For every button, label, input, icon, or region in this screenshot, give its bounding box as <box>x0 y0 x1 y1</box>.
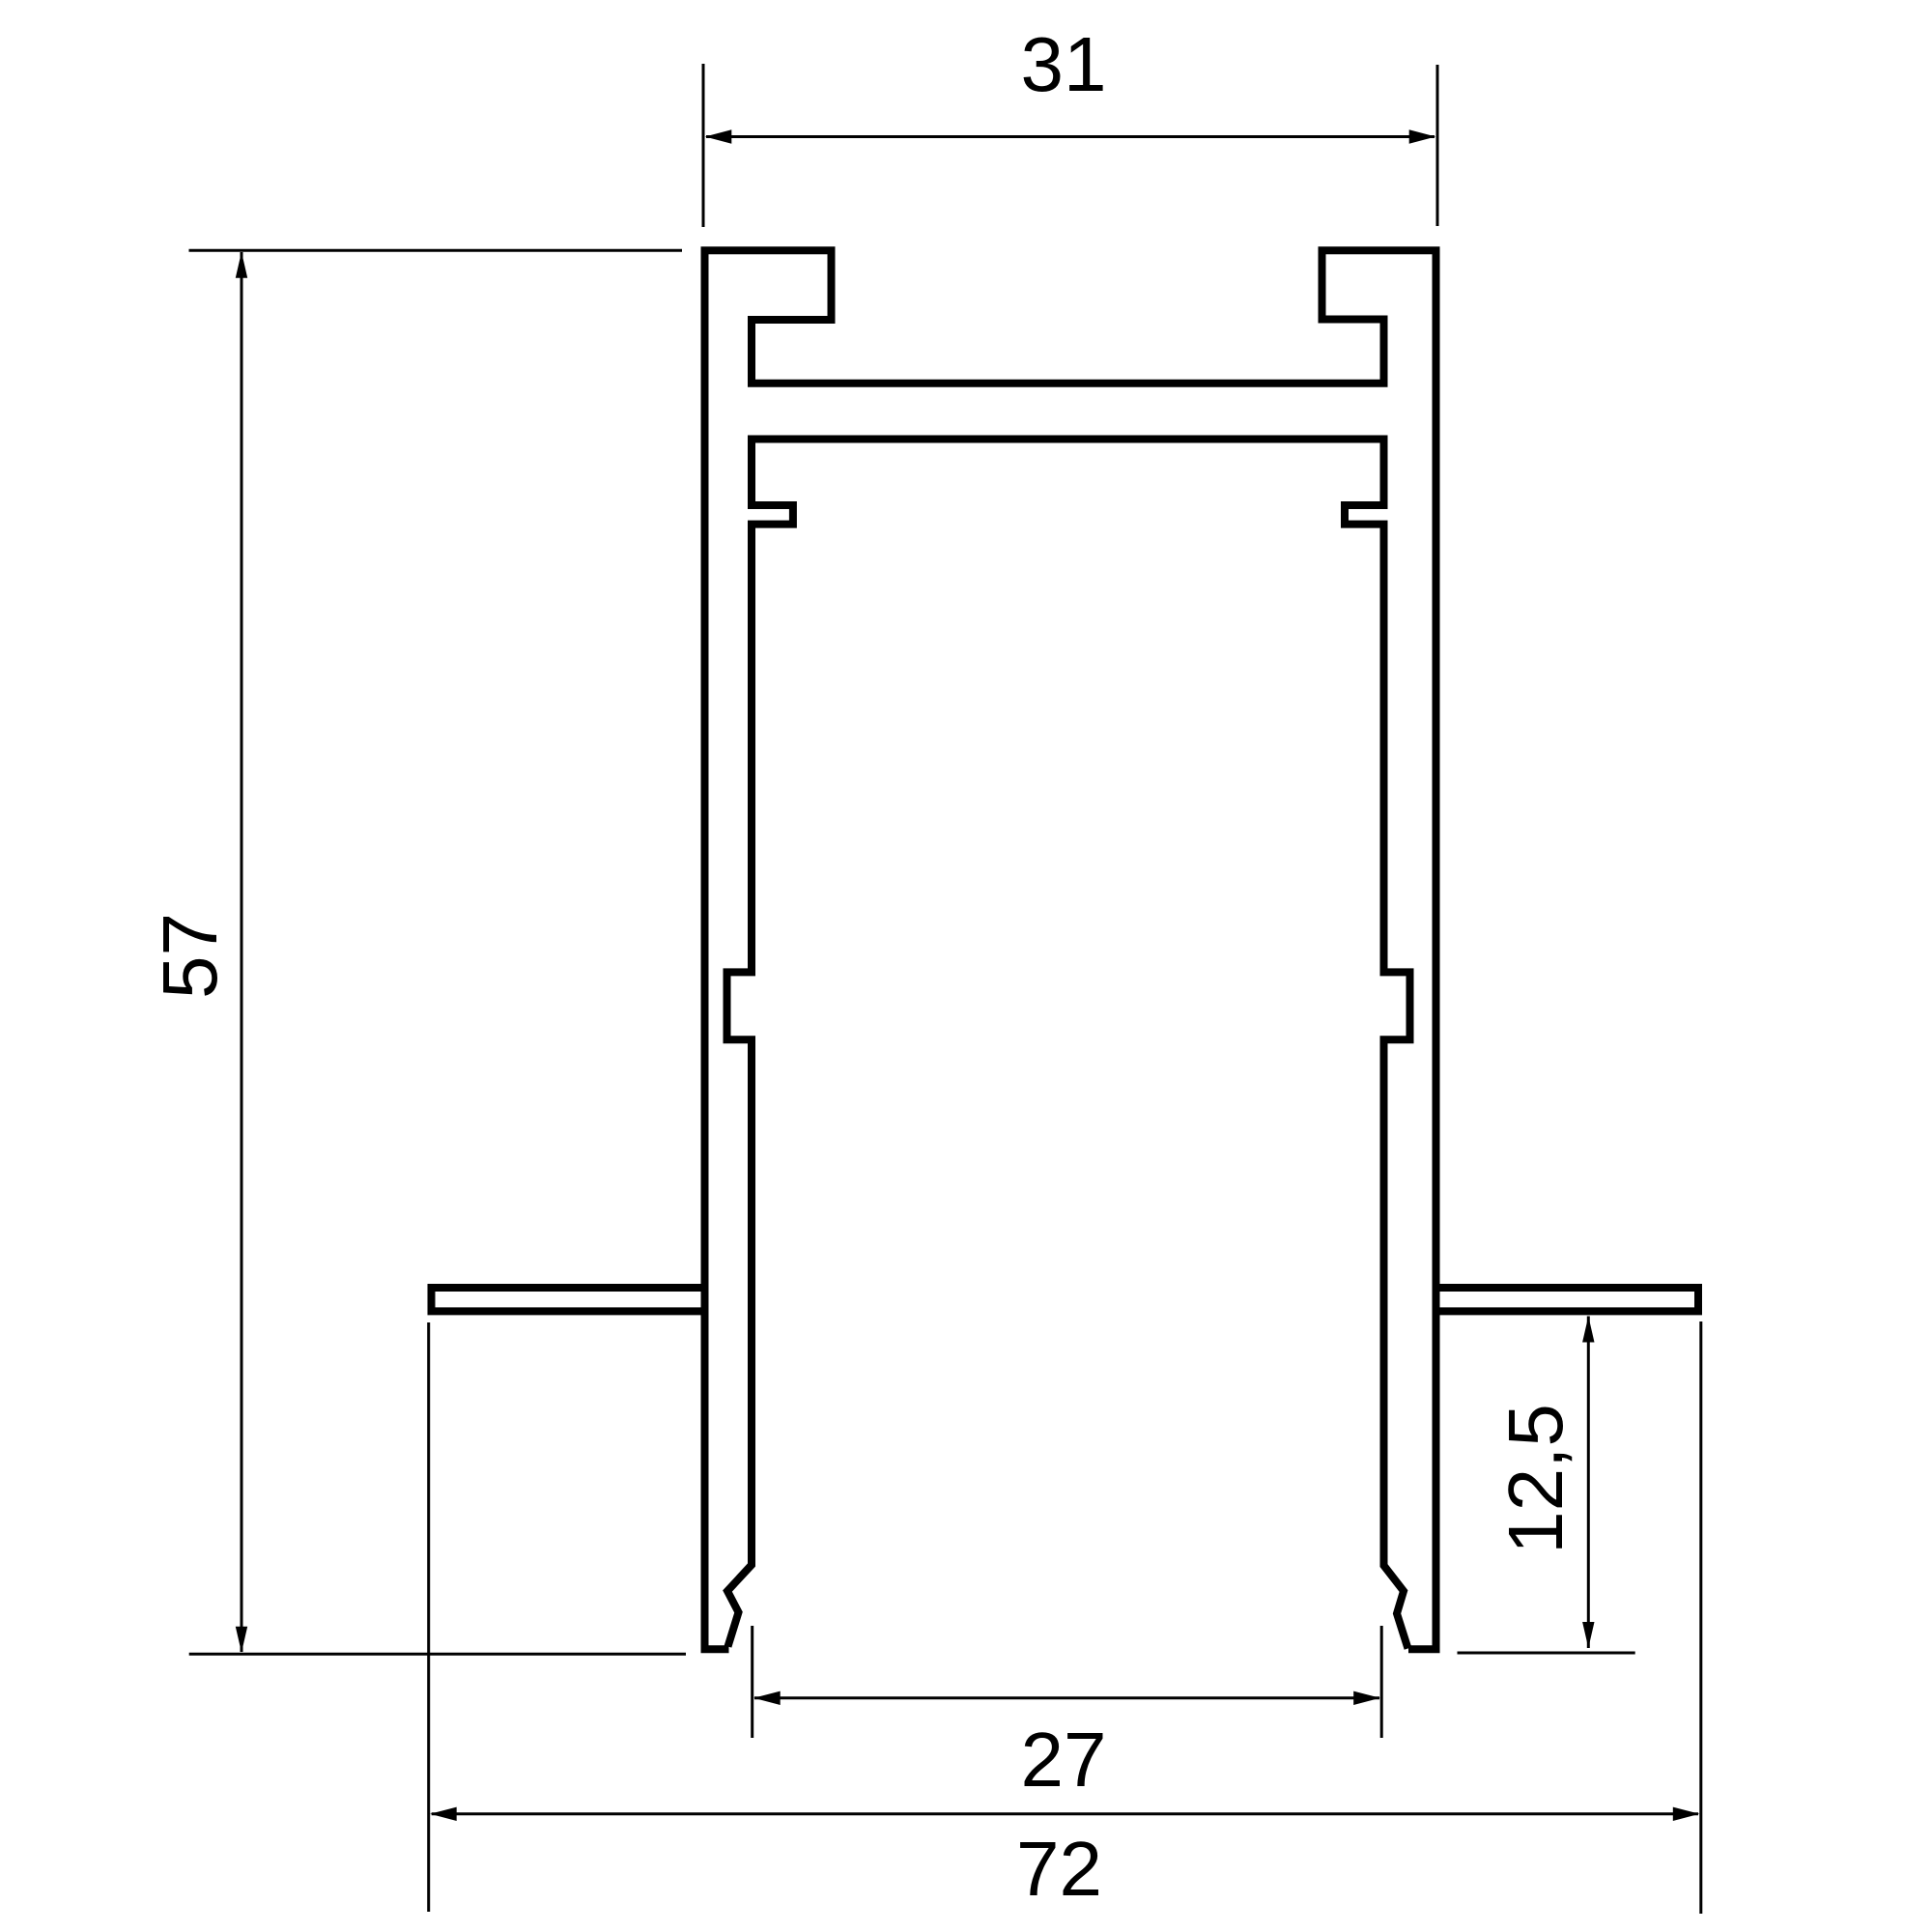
svg-text:57: 57 <box>147 913 233 999</box>
svg-text:12,5: 12,5 <box>1492 1404 1578 1554</box>
svg-text:31: 31 <box>1021 21 1107 107</box>
svg-text:27: 27 <box>1021 1717 1107 1803</box>
svg-text:72: 72 <box>1016 1826 1102 1912</box>
